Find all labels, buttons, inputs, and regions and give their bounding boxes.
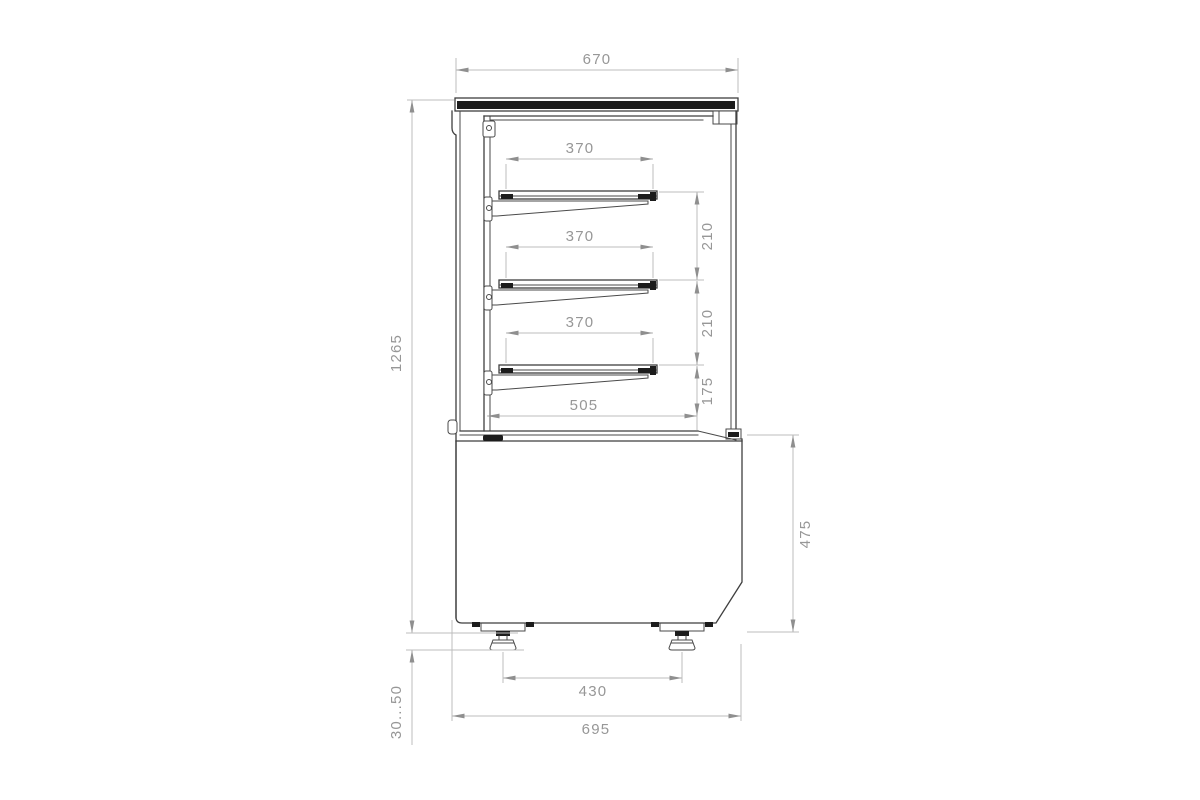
shelf-end-stop [650,192,656,201]
dim-label-shelf-spacing-2: 210 [699,309,716,338]
dim-counter-depth: 505 [487,397,697,430]
shelf-plate [499,280,657,288]
adjustable-foot-left [472,622,534,650]
foot-bracket [481,623,525,631]
ceiling-wall-bracket [483,121,495,137]
shelf-clip-left [501,368,513,373]
dim-label-canopy-width: 670 [583,51,612,68]
dim-label-feet-centers: 430 [579,683,608,700]
dim-base-depth: 695 [452,620,741,738]
interior-ceiling [483,116,713,137]
shelf-clip-right [638,194,651,199]
dim-label-shelf-spacing-1: 210 [699,222,716,251]
dim-label-counter-depth: 505 [570,397,599,414]
technical-drawing-canvas: 670 370 370 370 210 [0,0,1200,800]
display-case-outline [448,98,742,650]
shelf-clip-left [501,283,513,288]
dim-shelf3-width: 370 [506,314,653,363]
foot-bracket [660,623,704,631]
dim-shelf1-width: 370 [506,140,653,189]
dim-label-shelf3-width: 370 [566,314,595,331]
dim-label-overall-height: 1265 [388,334,405,372]
dim-shelf-spacing-2: 210 [697,281,716,365]
shelf-1 [484,191,657,221]
dim-overall-height: 1265 [388,100,454,633]
dim-label-foot-height-range: 30...50 [388,685,405,739]
dimension-drawing: 670 370 370 370 210 [0,0,1200,800]
dim-foot-height-range: 30...50 [388,633,524,745]
foot-pad [669,640,695,650]
foot-pad [490,640,516,650]
base-outline [456,439,742,623]
shelf-plate [499,191,657,199]
shelf-bracket [491,201,648,216]
dim-label-lowest-shelf-clearance: 175 [699,377,716,406]
rear-wall-joint-bump [448,420,457,434]
foot-tab-left [651,622,659,627]
dim-feet-centers: 430 [503,652,682,700]
shelf-bracket [491,375,648,390]
shelf-3 [484,365,657,395]
foot-screw [678,636,686,640]
shelf-bracket [491,290,648,305]
dim-canopy-width: 670 [456,51,738,93]
foot-tab-left [472,622,480,627]
base-cabinet [456,439,742,623]
shelf-end-stop [650,281,656,290]
shelf-clip-right [638,283,651,288]
rear-wall [448,111,490,618]
foot-tab-right [526,622,534,627]
dim-label-base-depth: 695 [582,721,611,738]
dim-label-shelf1-width: 370 [566,140,595,157]
shelf-end-stop [650,366,656,375]
dim-label-base-height: 475 [797,520,814,549]
canopy-black-bar [457,101,735,109]
counter-deck [456,431,742,441]
counter-drain [483,435,503,441]
front-glass [726,111,741,439]
dim-shelf2-width: 370 [506,228,653,278]
shelf-clip-right [638,368,651,373]
dimension-lines: 670 370 370 370 210 [388,51,814,745]
dim-base-height: 475 [747,435,814,632]
dim-shelf-spacing-1: 210 [697,192,716,280]
foot-nut [675,631,689,636]
foot-screw [499,636,507,640]
foot-tab-right [705,622,713,627]
adjustable-foot-right [651,622,713,650]
shelf-plate [499,365,657,373]
glass-shoe-gasket [728,432,739,437]
shelf-clip-left [501,194,513,199]
lamp-housing [713,111,737,124]
dim-label-shelf2-width: 370 [566,228,595,245]
shelf-2 [484,280,657,310]
dim-lowest-shelf-clearance: 175 [697,366,716,416]
